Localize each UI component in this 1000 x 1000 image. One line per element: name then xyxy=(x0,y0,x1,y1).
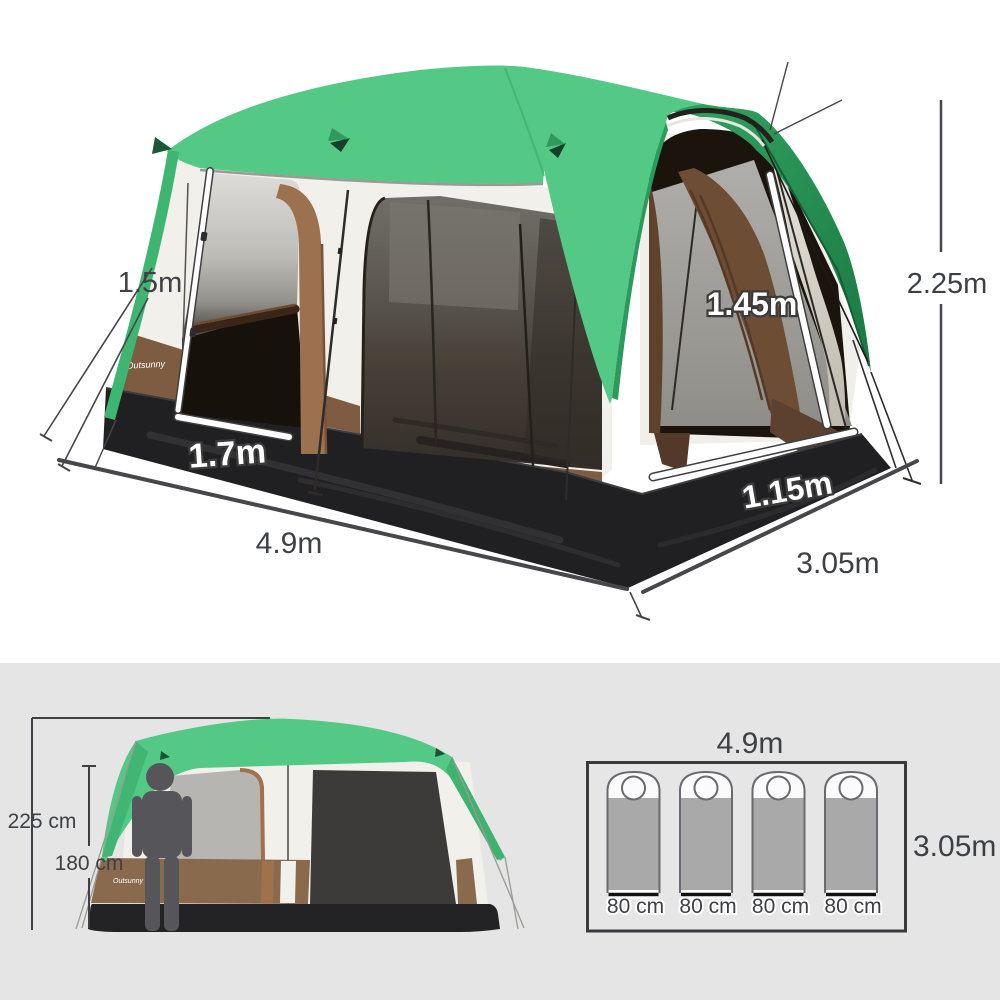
svg-text:225 cm: 225 cm xyxy=(8,810,77,833)
svg-text:1.5m: 1.5m xyxy=(118,267,182,299)
svg-text:2.25m: 2.25m xyxy=(907,268,988,300)
svg-text:1.45m: 1.45m xyxy=(707,286,798,322)
svg-text:Outsunny: Outsunny xyxy=(126,359,165,371)
svg-text:Outsunny: Outsunny xyxy=(113,878,143,885)
svg-text:3.05m: 3.05m xyxy=(796,547,879,580)
svg-text:4.9m: 4.9m xyxy=(256,527,323,560)
svg-text:3.05m: 3.05m xyxy=(913,830,996,863)
svg-text:80 cm: 80 cm xyxy=(824,895,881,918)
svg-text:80 cm: 80 cm xyxy=(752,895,809,918)
svg-text:4.9m: 4.9m xyxy=(717,727,784,760)
svg-text:180 cm: 180 cm xyxy=(55,852,124,875)
svg-text:80 cm: 80 cm xyxy=(607,895,664,918)
svg-text:1.7m: 1.7m xyxy=(187,432,267,475)
svg-text:80 cm: 80 cm xyxy=(679,895,736,918)
